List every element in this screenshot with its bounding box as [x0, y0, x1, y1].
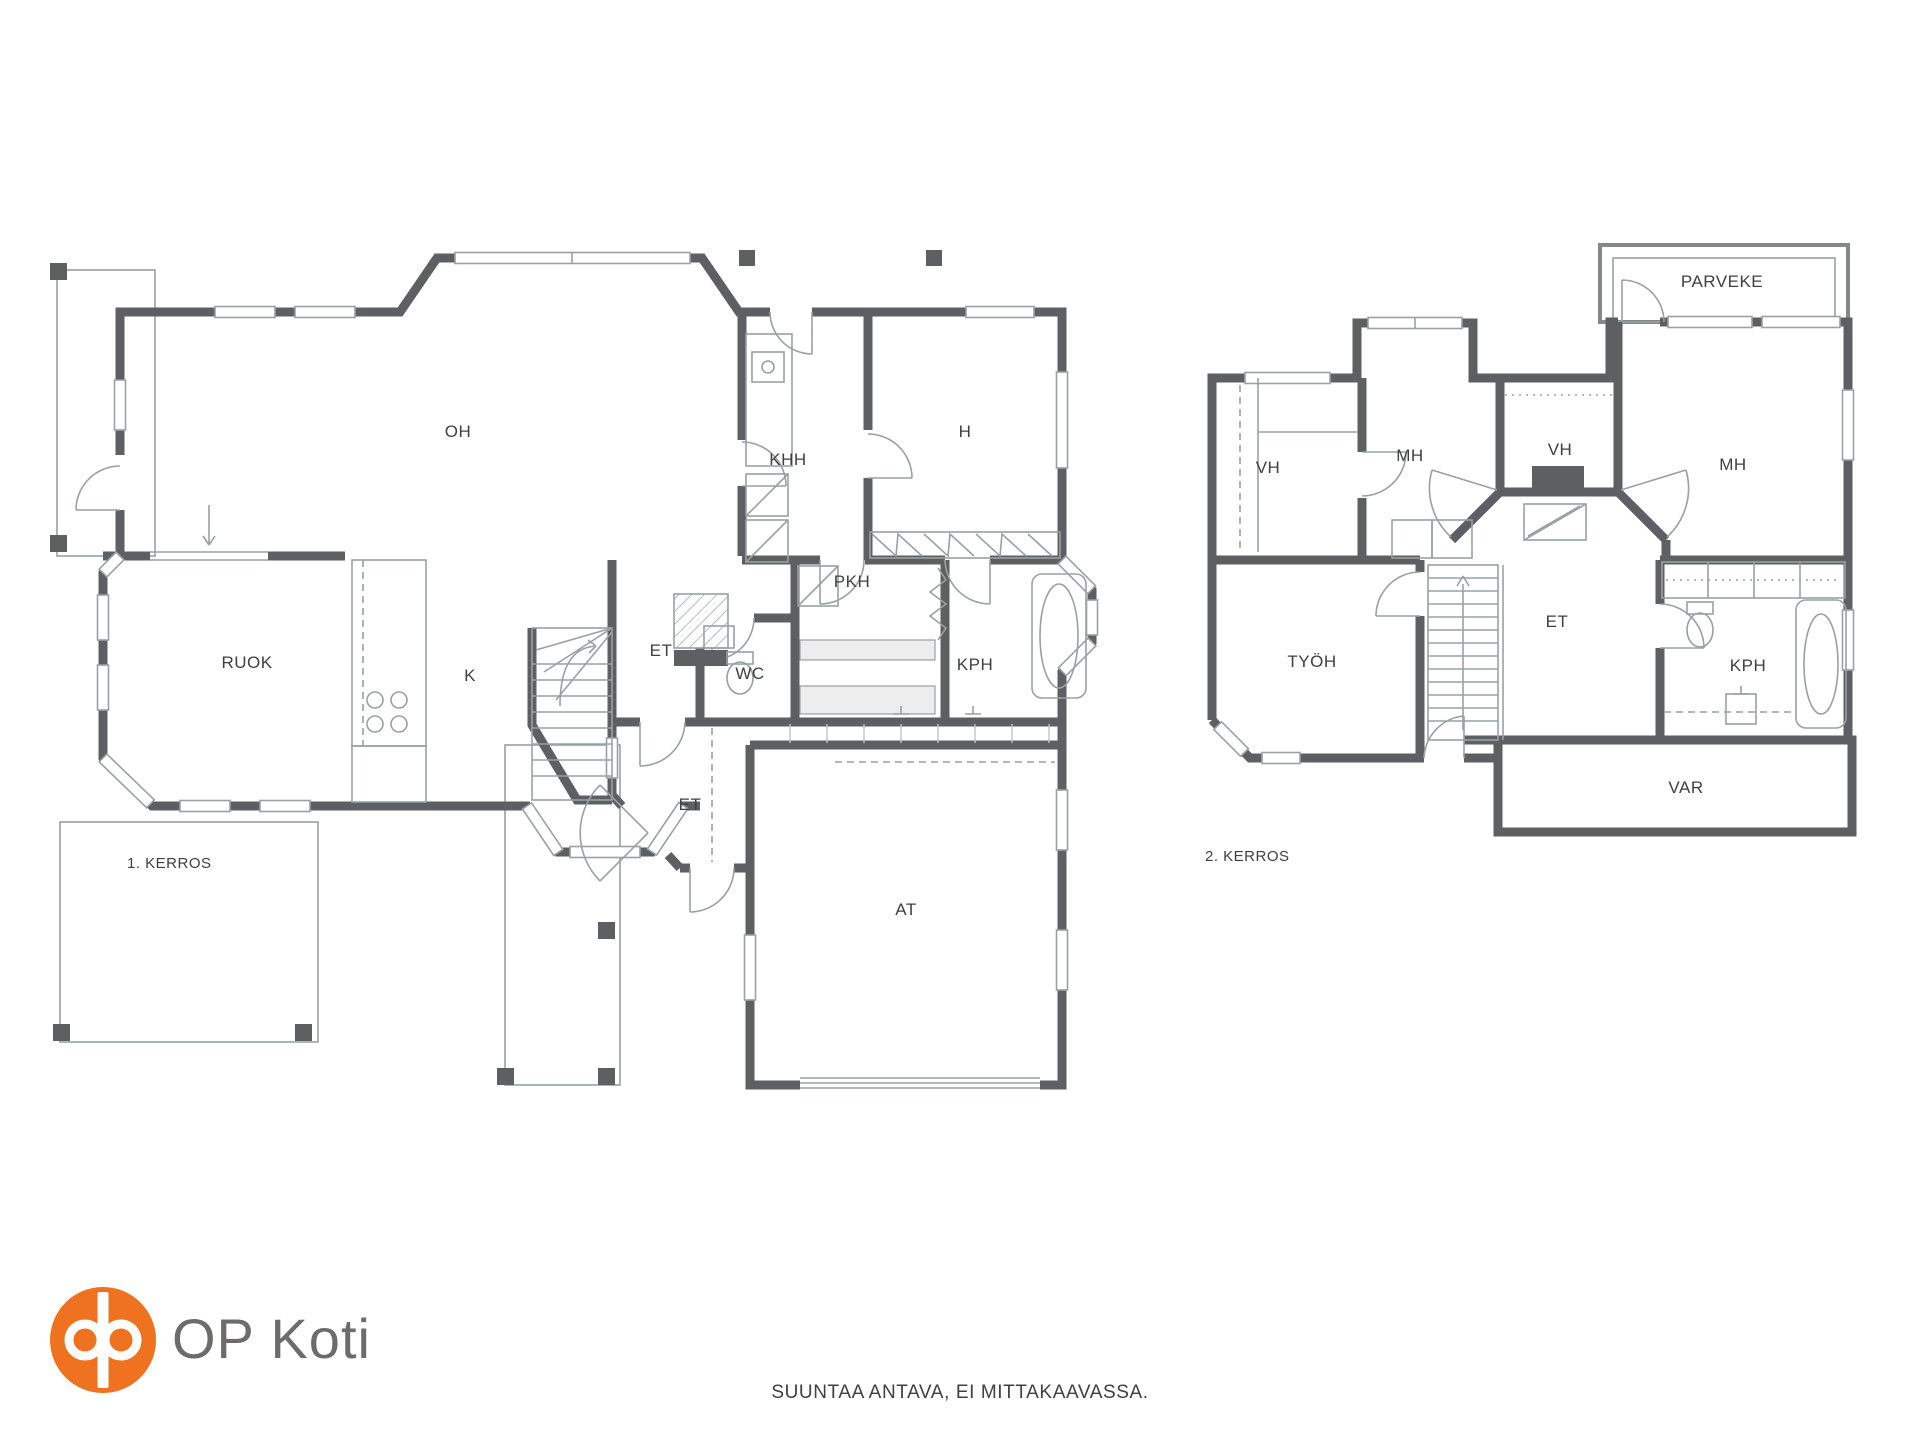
floorplan-page: OH KHH H PKH RUOK K ET WC KPH ET AT 1. K…: [0, 0, 1920, 1440]
plan2-walls: [1212, 322, 1852, 832]
logo-text: OP Koti: [172, 1306, 371, 1371]
floor-label-1: 1. KERROS: [127, 855, 212, 872]
room-label-et1: ET: [650, 641, 673, 661]
room-label-pkh: PKH: [834, 572, 870, 592]
op-logo-icon: [50, 1287, 156, 1393]
room-label-vh1: VH: [1256, 458, 1281, 478]
room-label-khh: KHH: [769, 450, 806, 470]
room-label-h: H: [959, 422, 972, 442]
room-label-vh2: VH: [1548, 440, 1573, 460]
plan1: [50, 250, 1098, 1088]
plan2-stairs: [1428, 565, 1503, 740]
floorplan-drawing: [0, 0, 1920, 1440]
floor-label-2: 2. KERROS: [1205, 848, 1290, 865]
room-label-ruok: RUOK: [221, 653, 272, 673]
room-label-k: K: [464, 666, 476, 686]
room-label-et2: ET: [679, 795, 702, 815]
room-label-oh: OH: [445, 422, 472, 442]
disclaimer-text: SUUNTAA ANTAVA, EI MITTAKAAVASSA.: [771, 1382, 1148, 1404]
room-label-tyoh: TYÖH: [1287, 652, 1336, 672]
room-label-et3: ET: [1546, 612, 1569, 632]
plan1-stairs: [532, 628, 612, 800]
room-label-parveke: PARVEKE: [1681, 272, 1763, 292]
room-label-mh2: MH: [1719, 455, 1746, 475]
plan2-doors: [1362, 280, 1704, 758]
room-label-kph1: KPH: [957, 655, 993, 675]
room-label-wc: WC: [735, 664, 764, 684]
room-label-var: VAR: [1668, 778, 1703, 798]
plan2: [1212, 245, 1854, 832]
room-label-at: AT: [895, 900, 916, 920]
room-label-kph2: KPH: [1730, 656, 1766, 676]
plan1-terrace: [50, 250, 942, 1085]
plan2-closet-block: [1532, 466, 1584, 492]
room-label-mh1: MH: [1396, 446, 1423, 466]
